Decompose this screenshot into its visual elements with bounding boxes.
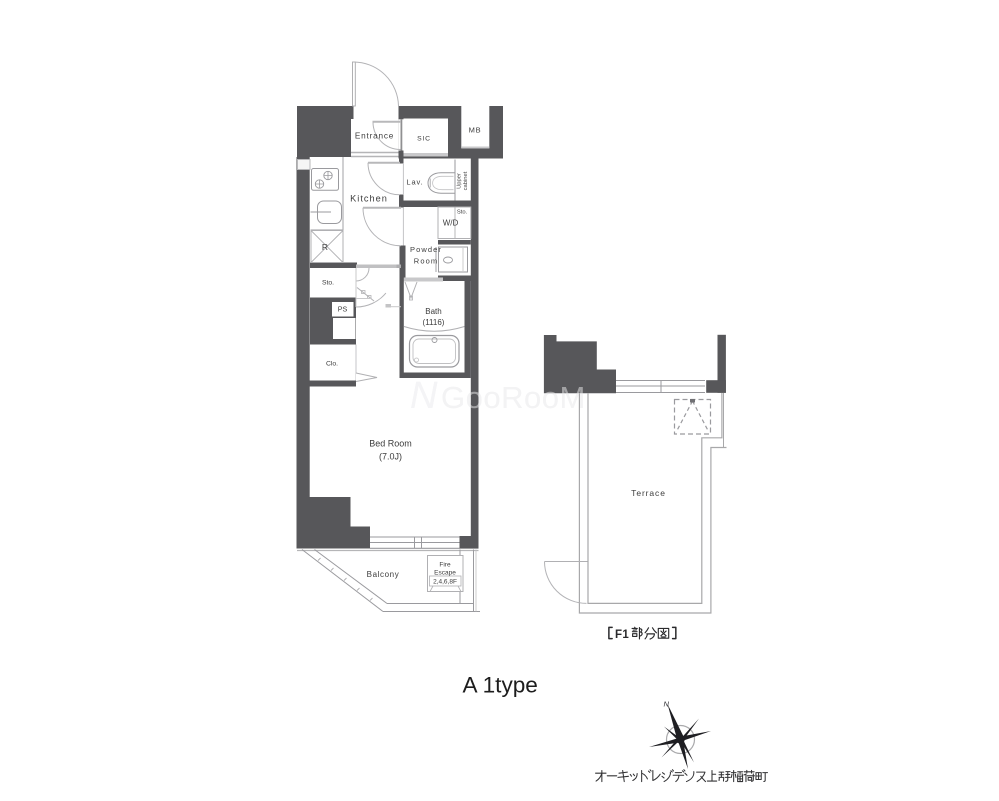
svg-text:Lav.: Lav. — [406, 178, 423, 187]
svg-text:Fire: Fire — [439, 562, 451, 569]
svg-text:(7.0J): (7.0J) — [379, 452, 402, 462]
svg-text:Bed Room: Bed Room — [369, 439, 412, 449]
svg-text:(1116): (1116) — [423, 318, 445, 327]
svg-text:Powder: Powder — [410, 245, 442, 254]
svg-text:Terrace: Terrace — [631, 488, 666, 498]
svg-text:Escape: Escape — [434, 570, 456, 577]
svg-text:N: N — [664, 700, 670, 709]
svg-text:Sto.: Sto. — [457, 210, 468, 216]
svg-text:R: R — [322, 242, 328, 252]
svg-text:Balcony: Balcony — [367, 570, 400, 579]
svg-text:SIC: SIC — [417, 136, 431, 143]
svg-text:2,4,6,8F: 2,4,6,8F — [433, 579, 457, 586]
svg-text:GooRooM: GooRooM — [441, 380, 586, 415]
svg-text:Kitchen: Kitchen — [350, 194, 388, 204]
svg-text:A 1type: A 1type — [463, 673, 538, 698]
svg-text:Room: Room — [414, 257, 438, 266]
svg-text:Bath: Bath — [425, 307, 441, 316]
svg-text:Sto.: Sto. — [322, 280, 334, 287]
svg-text:Clo.: Clo. — [326, 361, 338, 368]
svg-text:W/D: W/D — [443, 219, 459, 228]
svg-text:Entrance: Entrance — [355, 132, 394, 141]
svg-text:PS: PS — [338, 305, 348, 314]
svg-text:Upper: Upper — [457, 173, 463, 189]
svg-text:N: N — [410, 375, 438, 417]
svg-text:MB: MB — [469, 126, 482, 135]
svg-text:cabinet: cabinet — [463, 171, 469, 190]
svg-text:F1: F1 — [615, 629, 629, 641]
